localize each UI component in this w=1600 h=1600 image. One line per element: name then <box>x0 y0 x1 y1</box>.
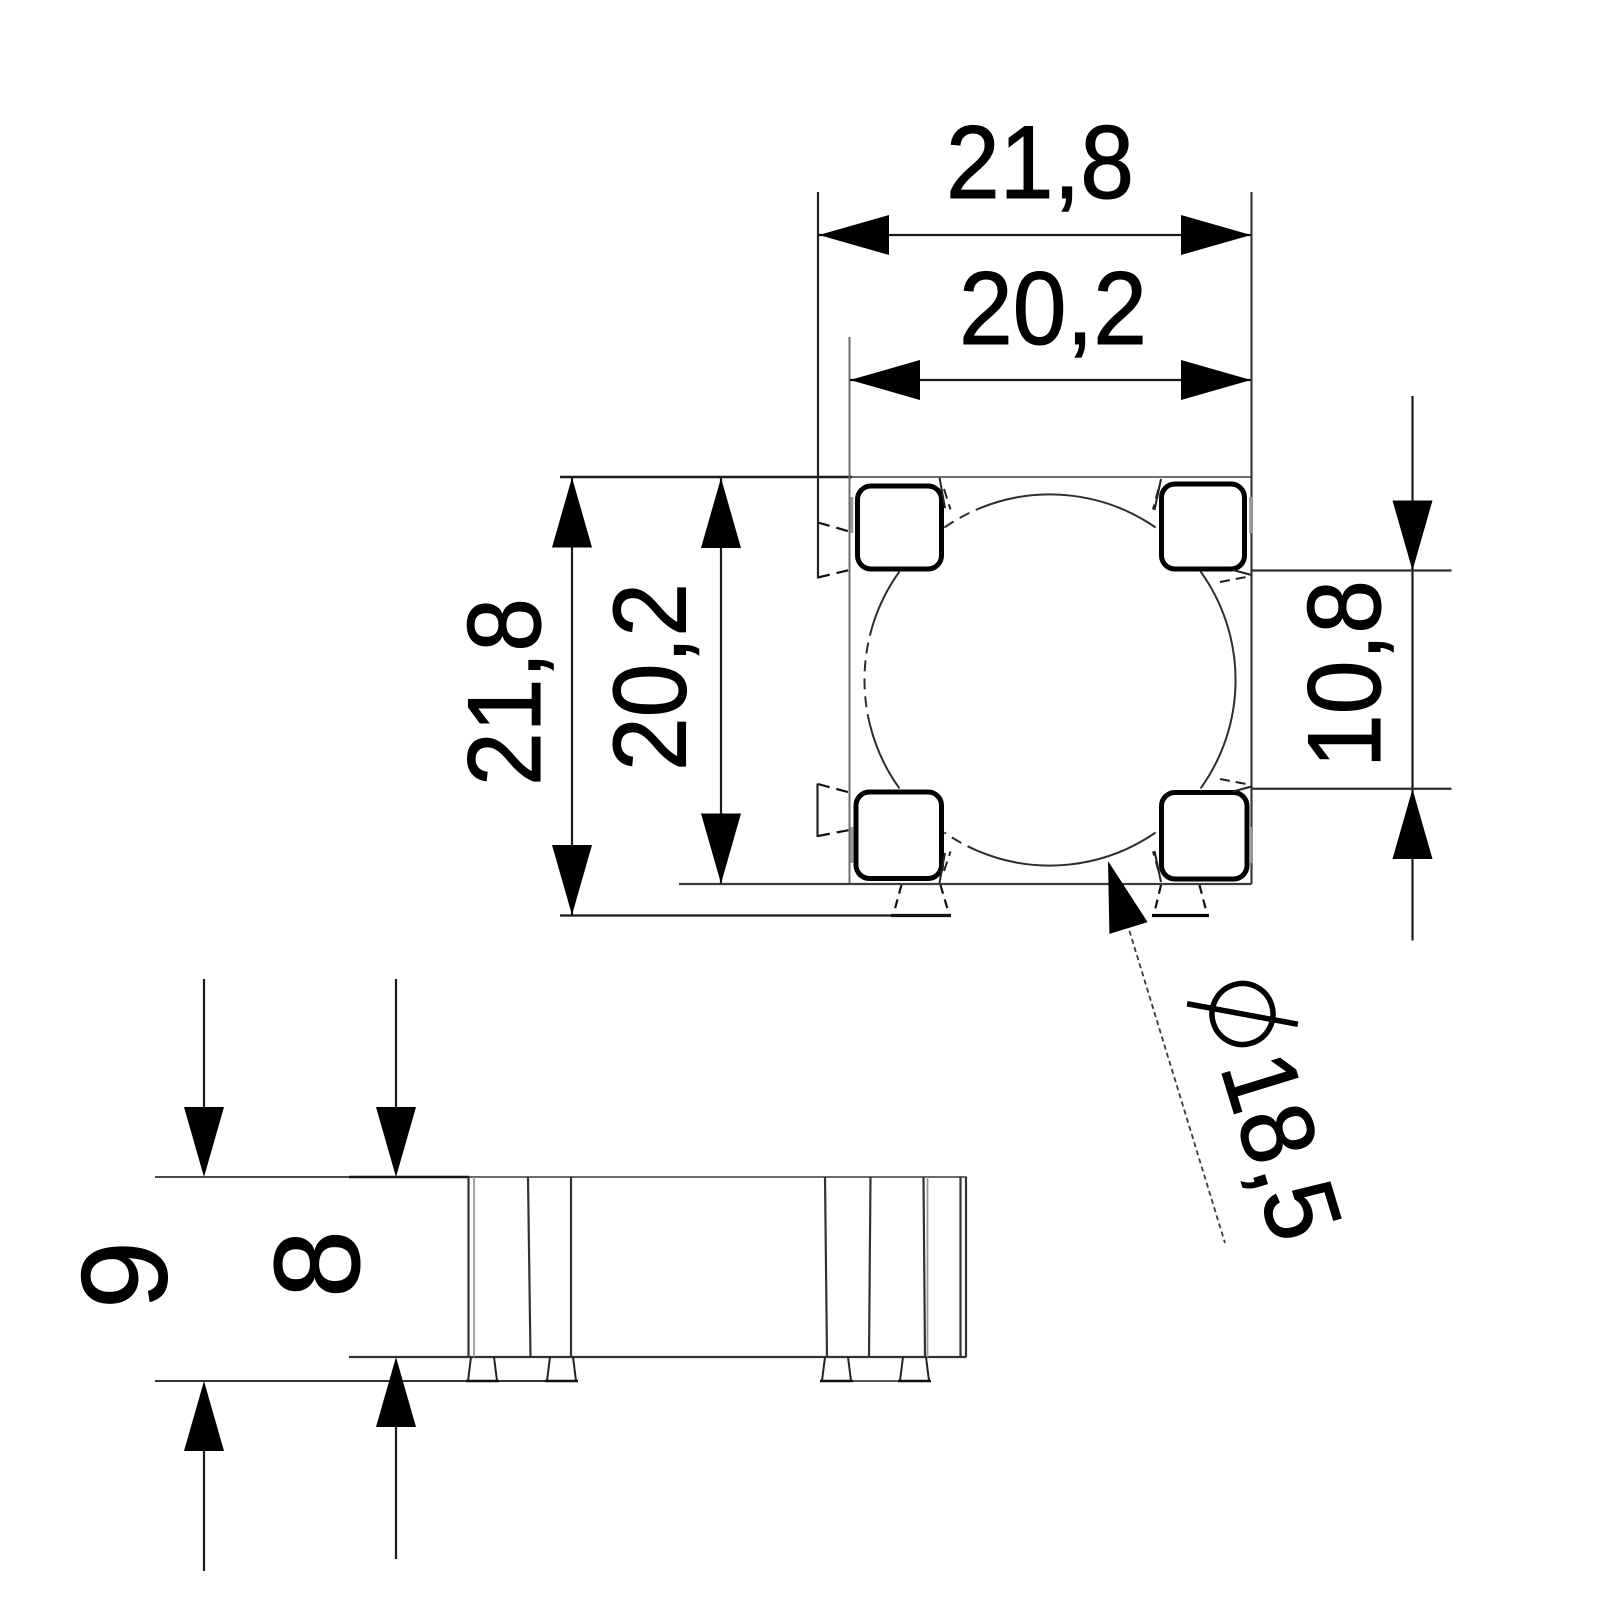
svg-text:20,2: 20,2 <box>959 251 1147 367</box>
svg-text:21,8: 21,8 <box>447 598 563 786</box>
svg-text:21,8: 21,8 <box>946 105 1134 221</box>
svg-text:9: 9 <box>57 1241 193 1309</box>
svg-text:10,8: 10,8 <box>1287 580 1403 768</box>
svg-text:8: 8 <box>249 1230 385 1298</box>
svg-text:20,2: 20,2 <box>593 583 709 771</box>
